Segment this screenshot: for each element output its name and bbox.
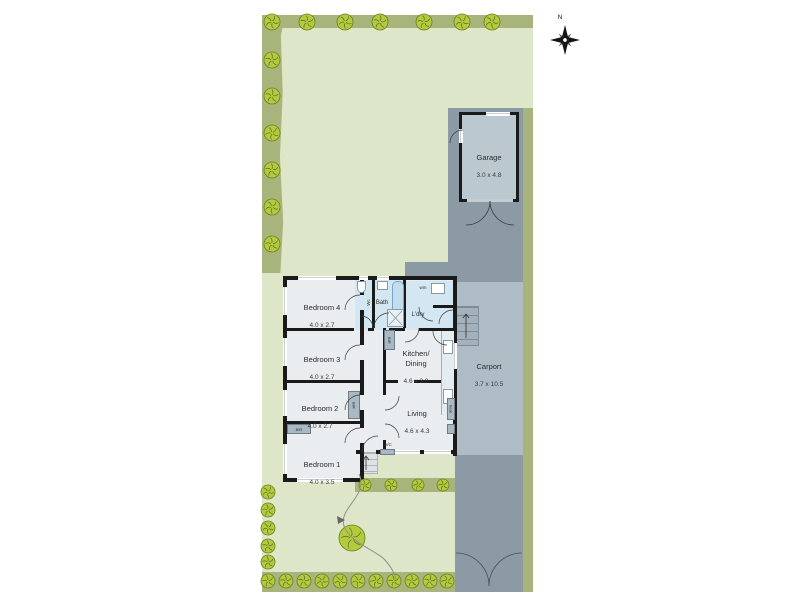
- wall: [372, 276, 375, 328]
- room-label-garage: Garage 3.0 x 4.8: [476, 143, 501, 190]
- garage-door-opening: [467, 199, 513, 202]
- garden-bed-right: [523, 108, 533, 592]
- carport-steps: [455, 306, 479, 346]
- room-dims: 4.0 x 3.5: [304, 479, 341, 487]
- room-name: Bedroom 3: [304, 355, 341, 365]
- room-dims: 3.0 x 4.8: [476, 172, 501, 180]
- room-dims: 4.6 x 3.0: [402, 378, 429, 386]
- wall: [360, 360, 364, 395]
- laundry-trough: [431, 283, 445, 294]
- window: [424, 450, 451, 454]
- room-name: Bedroom 2: [302, 404, 339, 414]
- garage-window: [486, 112, 510, 116]
- room-name: Living: [405, 409, 430, 419]
- room-name: L'dry: [412, 312, 425, 320]
- window: [283, 287, 287, 315]
- room-dims: 4.0 x 2.7: [302, 423, 339, 431]
- wall: [433, 305, 456, 308]
- wall: [360, 410, 364, 428]
- air-conditioner-label: A/C: [384, 442, 392, 447]
- room-label-wc: Wc: [366, 299, 371, 306]
- window: [359, 276, 368, 280]
- garden-bed-top: [262, 15, 533, 28]
- window: [283, 444, 287, 474]
- site-floor-plan: BIR BIR BIR heat Bedroom 4 4.0 x 2.7 Bed…: [0, 0, 800, 600]
- room-dims: 4.0 x 2.7: [304, 322, 341, 330]
- room-label-bedroom2: Bedroom 2 4.0 x 2.7: [302, 394, 339, 441]
- hedge-bed-front: [355, 478, 455, 492]
- compass-north-label: N: [558, 14, 563, 21]
- window: [283, 390, 287, 416]
- window: [283, 338, 287, 366]
- kitchen-sink: [443, 340, 453, 354]
- wall-unit: [447, 424, 455, 434]
- room-label-bedroom1: Bedroom 1 4.0 x 3.5: [304, 450, 341, 497]
- wall: [368, 328, 374, 331]
- built-in-robe: BIR: [348, 391, 360, 419]
- window: [298, 276, 336, 280]
- room-name: Garage: [476, 153, 501, 163]
- air-conditioner-unit: [380, 449, 395, 455]
- room-name: Kitchen/ Dining: [402, 349, 429, 369]
- room-label-bath: Bath: [376, 292, 388, 315]
- toilet: [357, 281, 366, 293]
- room-label-laundry: L'dry: [412, 304, 425, 327]
- room-dims: 3.7 x 10.5: [475, 381, 504, 389]
- room-name: Bath: [376, 300, 388, 308]
- wall: [360, 310, 364, 345]
- window: [392, 450, 420, 454]
- bath-sink: [377, 281, 388, 290]
- shower: [387, 309, 404, 327]
- room-label-bedroom4: Bedroom 4 4.0 x 2.7: [304, 293, 341, 340]
- room-label-bedroom3: Bedroom 3 4.0 x 2.7: [304, 345, 341, 392]
- room-label-carport: Carport 3.7 x 10.5: [475, 352, 504, 399]
- room-label-kitchen-dining: Kitchen/ Dining 4.6 x 3.0: [402, 339, 429, 396]
- wall: [360, 443, 364, 482]
- room-name: Bedroom 4: [304, 303, 341, 313]
- room-dims: 4.6 x 4.3: [405, 428, 430, 436]
- room-dims: 4.0 x 2.7: [304, 374, 341, 382]
- garage-side-door-opening: [459, 129, 463, 143]
- room-name: Carport: [475, 362, 504, 372]
- window: [377, 276, 389, 280]
- garden-bed-bottom: [262, 572, 455, 592]
- room-name: Bedroom 1: [304, 460, 341, 470]
- room-label-living: Living 4.6 x 4.3: [405, 399, 430, 446]
- washing-machine-label: wm: [420, 285, 427, 290]
- driveway-front: [455, 455, 523, 592]
- heater-unit: heat: [447, 398, 455, 420]
- linen-robe: BIR: [384, 330, 395, 350]
- compass-icon: [550, 25, 580, 55]
